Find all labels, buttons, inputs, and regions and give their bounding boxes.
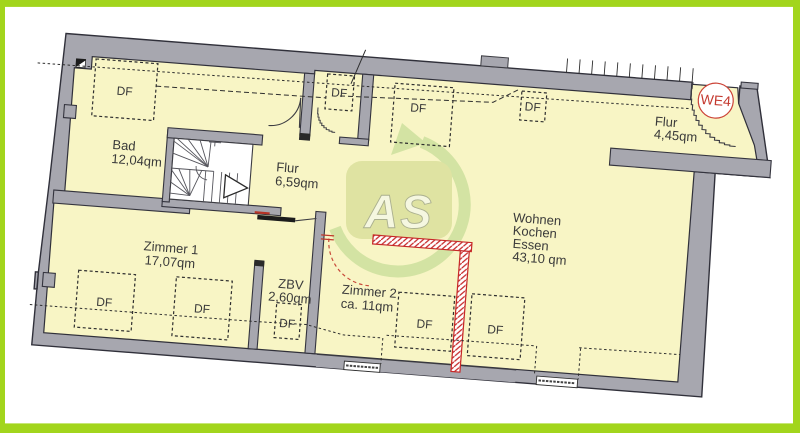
svg-text:WE4: WE4 — [700, 91, 732, 109]
svg-text:DF: DF — [194, 301, 211, 316]
svg-text:DF: DF — [416, 317, 433, 332]
svg-text:DF: DF — [524, 99, 541, 114]
svg-text:DF: DF — [279, 316, 296, 331]
svg-text:DF: DF — [410, 100, 427, 115]
svg-text:DF: DF — [96, 295, 113, 310]
svg-text:DF: DF — [331, 85, 348, 100]
svg-text:AS: AS — [363, 185, 433, 238]
svg-text:DF: DF — [116, 84, 133, 99]
svg-text:DF: DF — [487, 322, 504, 337]
